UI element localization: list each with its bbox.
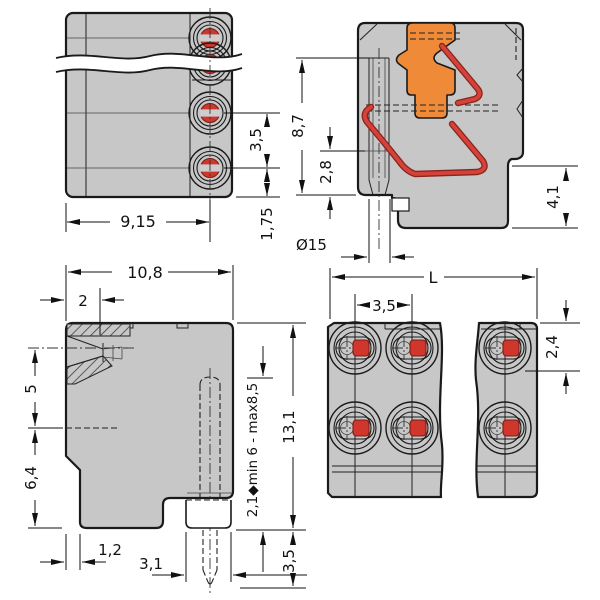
technical-drawing-page: 9,15 3,5 1,75 (0, 0, 600, 600)
view-profile: 10,8 2 5 6,4 1,2 3,1 13,1 (22, 263, 307, 594)
dim-upper-5: 5 (22, 384, 40, 394)
dim-front-pitch-35: 3,5 (372, 297, 396, 315)
dim-lower-28: 2,8 (317, 160, 335, 184)
terminal-block-drawing: 9,15 3,5 1,75 (0, 0, 600, 600)
dim-step-12: 1,2 (98, 541, 122, 559)
dim-height-131: 13,1 (280, 410, 298, 443)
foot-notch (392, 198, 409, 211)
dim-height-87: 8,7 (289, 114, 307, 138)
dim-entry-2: 2 (78, 292, 88, 310)
break-line (56, 54, 242, 73)
dim-pitch-35: 3,5 (247, 128, 265, 152)
view-section: 8,7 2,8 Ø15 4,1 (289, 23, 578, 263)
dim-offset-24: 2,4 (543, 335, 561, 359)
dim-width-915: 9,15 (120, 212, 156, 231)
dim-base-31: 3,1 (139, 555, 163, 573)
view-side-broken: 9,15 3,5 1,75 (56, 8, 280, 242)
view-front: L 3,5 2,4 (328, 268, 580, 497)
dim-edge-175: 1,75 (258, 207, 276, 240)
dim-pin-range: 2,1◆min 6 - max8,5 (245, 383, 261, 518)
housing-section (358, 23, 523, 228)
dim-pin-length-35: 3,5 (280, 549, 298, 573)
dim-total-length: L (429, 268, 438, 287)
dim-lower-64: 6,4 (22, 466, 40, 490)
dim-hole-diameter: Ø15 (296, 236, 327, 254)
housing-profile (66, 323, 233, 528)
pin-base (186, 500, 231, 528)
dim-foot-41: 4,1 (544, 185, 562, 209)
dim-width-108: 10,8 (127, 263, 163, 282)
